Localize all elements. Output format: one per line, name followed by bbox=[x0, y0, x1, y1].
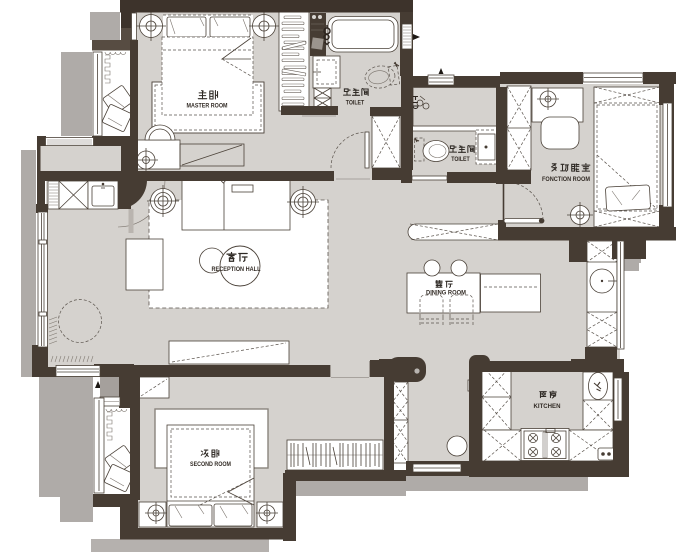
svg-text:TOILET: TOILET bbox=[451, 157, 470, 163]
svg-text:SECOND ROOM: SECOND ROOM bbox=[190, 462, 231, 468]
svg-text:MASTER ROOM: MASTER ROOM bbox=[187, 104, 228, 110]
svg-text:DINING ROOM: DINING ROOM bbox=[426, 291, 466, 297]
svg-text:RECEPTION HALL: RECEPTION HALL bbox=[212, 267, 261, 273]
svg-text:TOILET: TOILET bbox=[346, 101, 365, 107]
svg-text:FONCTION ROOM: FONCTION ROOM bbox=[542, 177, 590, 183]
svg-text:KITCHEN: KITCHEN bbox=[534, 404, 561, 410]
